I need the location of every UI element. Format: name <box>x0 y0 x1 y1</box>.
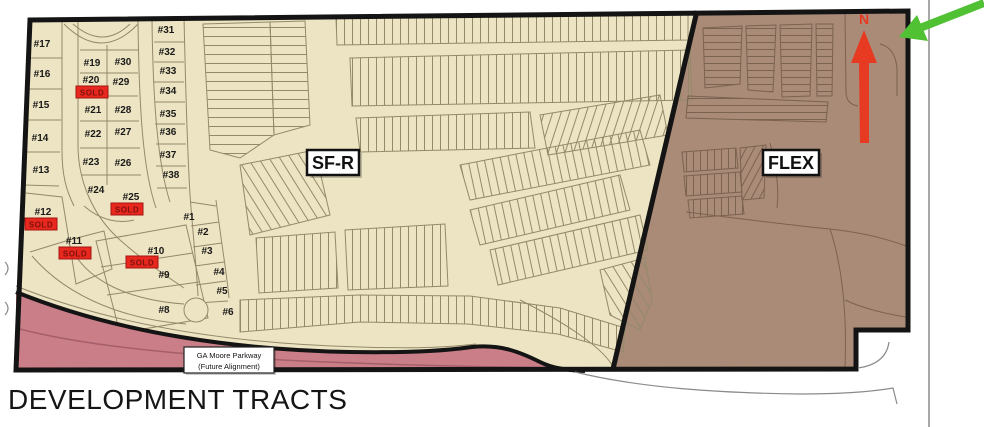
lot-label-23: #23 <box>83 157 100 168</box>
lot-label-5: #5 <box>216 286 228 297</box>
sold-badge-label: SOLD <box>63 250 87 259</box>
lot-label-4: #4 <box>213 267 225 278</box>
lot-label-8: #8 <box>158 305 170 316</box>
lot-label-27: #27 <box>115 127 132 138</box>
sfr-zone-text: SF-R <box>312 153 354 173</box>
lot-label-20: #20 <box>83 75 100 86</box>
cul-de-sac <box>184 298 208 322</box>
sold-badge-label: SOLD <box>80 89 104 98</box>
lot-label-30: #30 <box>115 57 132 68</box>
lot-label-36: #36 <box>160 127 177 138</box>
lot-label-3: #3 <box>201 246 213 257</box>
flex-zone-text: FLEX <box>768 153 814 173</box>
page-title: DEVELOPMENT TRACTS <box>8 384 347 416</box>
sold-badge-label: SOLD <box>130 259 154 268</box>
lot-label-26: #26 <box>115 158 132 169</box>
lot-label-34: #34 <box>160 86 177 97</box>
lot-label-25: #25 <box>123 192 140 203</box>
flex-zone-label: FLEX <box>763 150 822 178</box>
lot-label-14: #14 <box>32 133 49 144</box>
lot-label-22: #22 <box>85 129 102 140</box>
lot-label-16: #16 <box>34 69 51 80</box>
lot-label-6: #6 <box>222 307 234 318</box>
lot-label-15: #15 <box>33 100 50 111</box>
parkway-label-line1: GA Moore Parkway <box>197 351 262 360</box>
lot-label-9: #9 <box>158 270 170 281</box>
lot-label-17: #17 <box>34 39 51 50</box>
parkway-label-line2: (Future Alignment) <box>198 362 260 371</box>
lot-label-13: #13 <box>33 165 50 176</box>
lot-label-38: #38 <box>163 170 180 181</box>
lot-label-28: #28 <box>115 105 132 116</box>
parkway-label: GA Moore Parkway (Future Alignment) <box>184 347 276 375</box>
plat-map-canvas: N SF-R FLEX GA Moore Parkway (Future Ali… <box>0 0 984 427</box>
lot-label-21: #21 <box>85 105 102 116</box>
lot-label-19: #19 <box>84 58 101 69</box>
lot-label-31: #31 <box>158 25 175 36</box>
lot-label-12: #12 <box>35 207 52 218</box>
lot-label-10: #10 <box>148 246 165 257</box>
lot-label-29: #29 <box>113 77 130 88</box>
sold-badge-label: SOLD <box>29 221 53 230</box>
lot-label-32: #32 <box>159 47 176 58</box>
lot-label-11: #11 <box>66 236 83 247</box>
lot-label-1: #1 <box>183 212 195 223</box>
lot-label-2: #2 <box>197 227 209 238</box>
lot-label-24: #24 <box>88 185 105 196</box>
sfr-zone-label: SF-R <box>307 150 362 178</box>
green-pointer-icon <box>899 3 984 41</box>
lot-label-35: #35 <box>160 109 177 120</box>
lot-label-37: #37 <box>160 150 177 161</box>
sold-badge-label: SOLD <box>115 206 139 215</box>
north-label: N <box>859 11 869 27</box>
development-tracts-map: N SF-R FLEX GA Moore Parkway (Future Ali… <box>0 0 984 427</box>
lot-label-33: #33 <box>160 66 177 77</box>
